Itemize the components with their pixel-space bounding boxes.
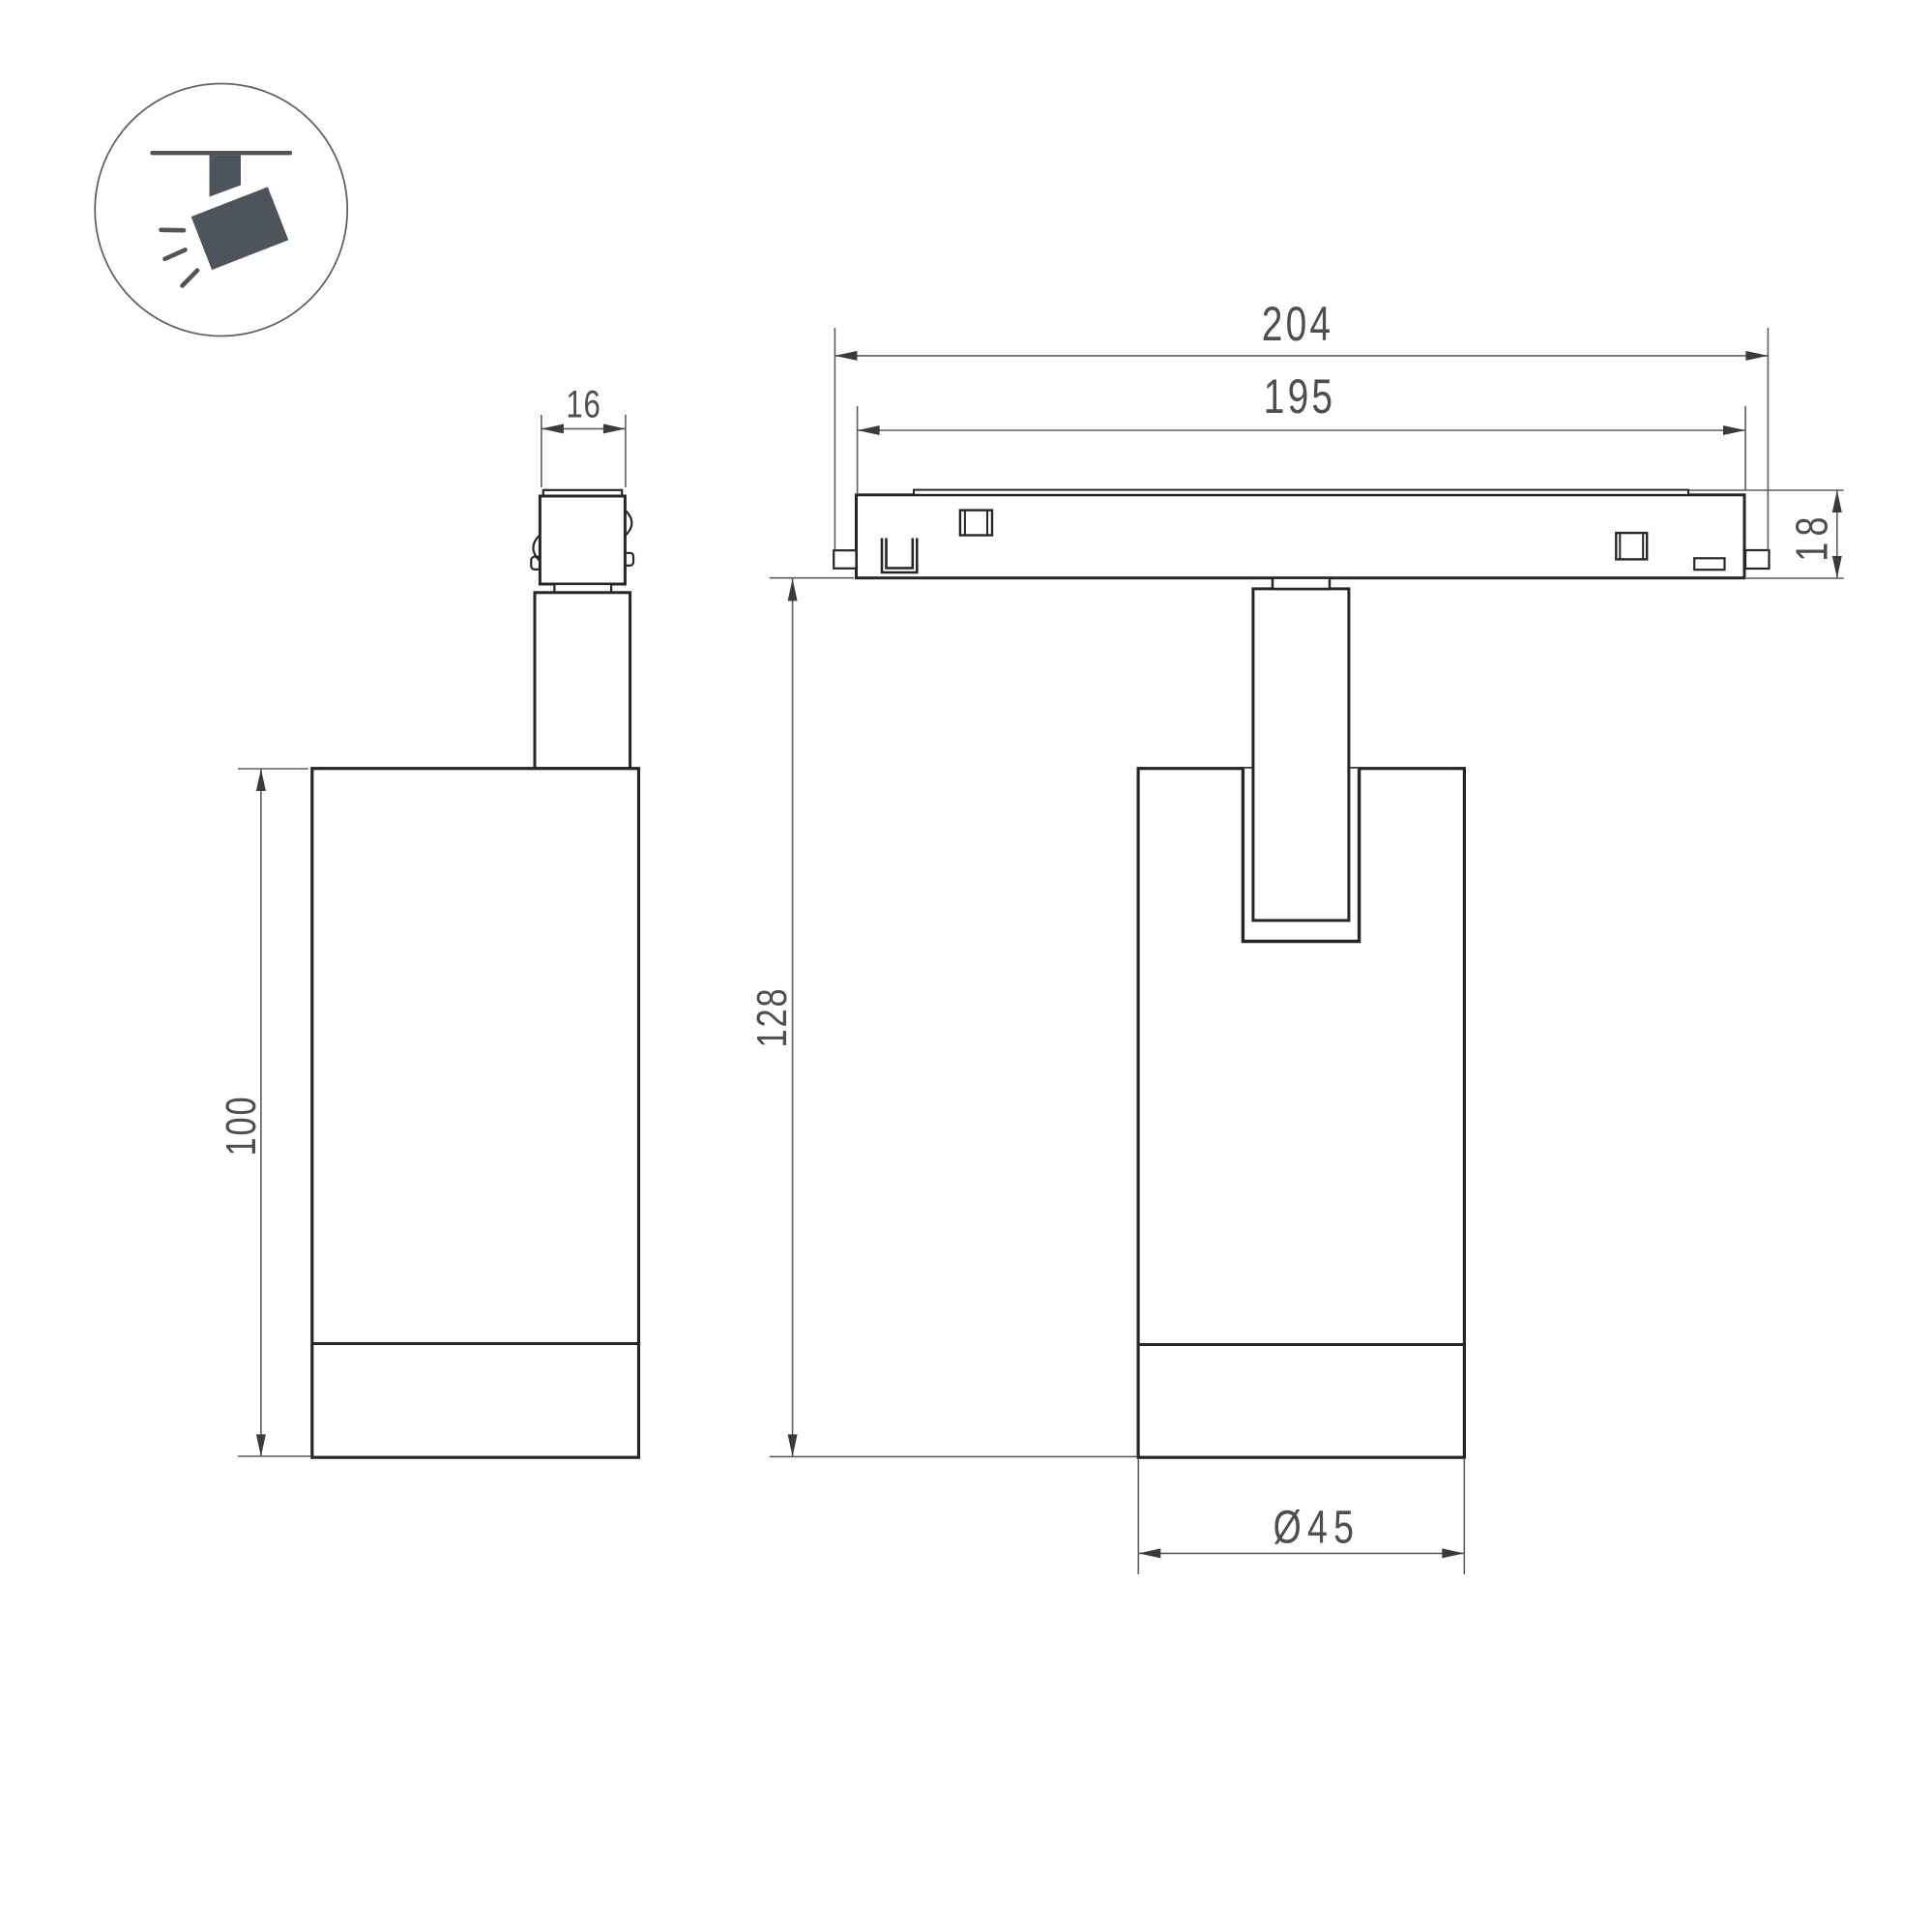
svg-text:100: 100 <box>218 1095 265 1156</box>
svg-text:18: 18 <box>1787 511 1836 561</box>
svg-text:195: 195 <box>1264 368 1335 424</box>
svg-text:16: 16 <box>566 383 600 426</box>
svg-text:204: 204 <box>1262 296 1333 351</box>
svg-text:Ø45: Ø45 <box>1273 1502 1360 1554</box>
svg-text:128: 128 <box>748 986 796 1047</box>
